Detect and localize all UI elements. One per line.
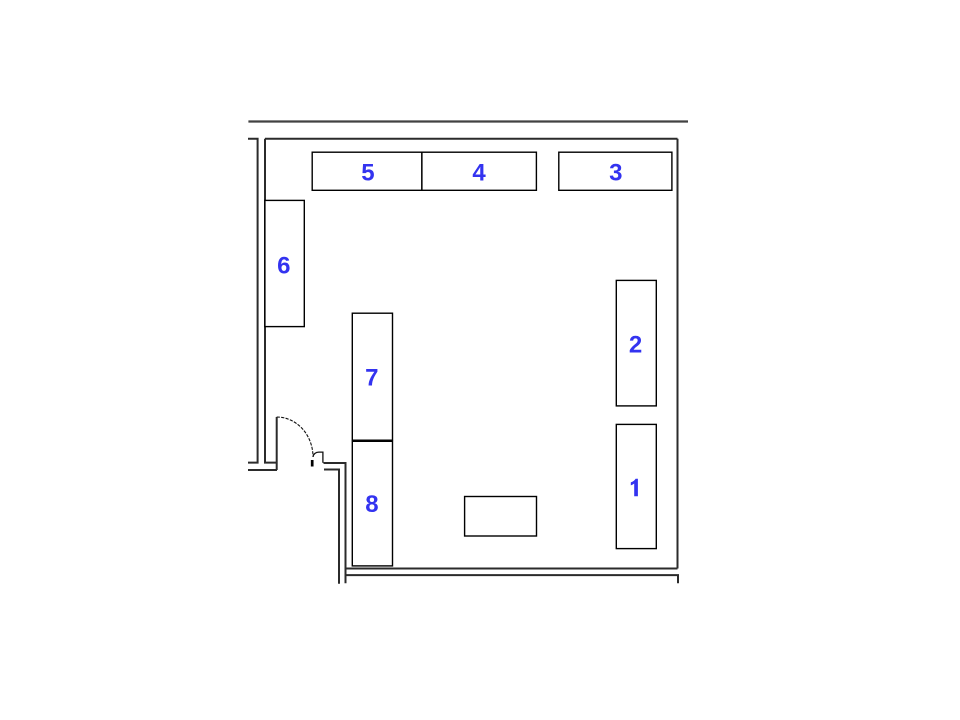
svg-text:6: 6 <box>277 252 290 279</box>
svg-text:8: 8 <box>365 491 378 518</box>
svg-text:7: 7 <box>365 365 378 392</box>
svg-text:5: 5 <box>361 160 374 187</box>
svg-text:4: 4 <box>472 160 486 187</box>
svg-text:2: 2 <box>629 332 642 359</box>
svg-text:3: 3 <box>609 160 622 187</box>
